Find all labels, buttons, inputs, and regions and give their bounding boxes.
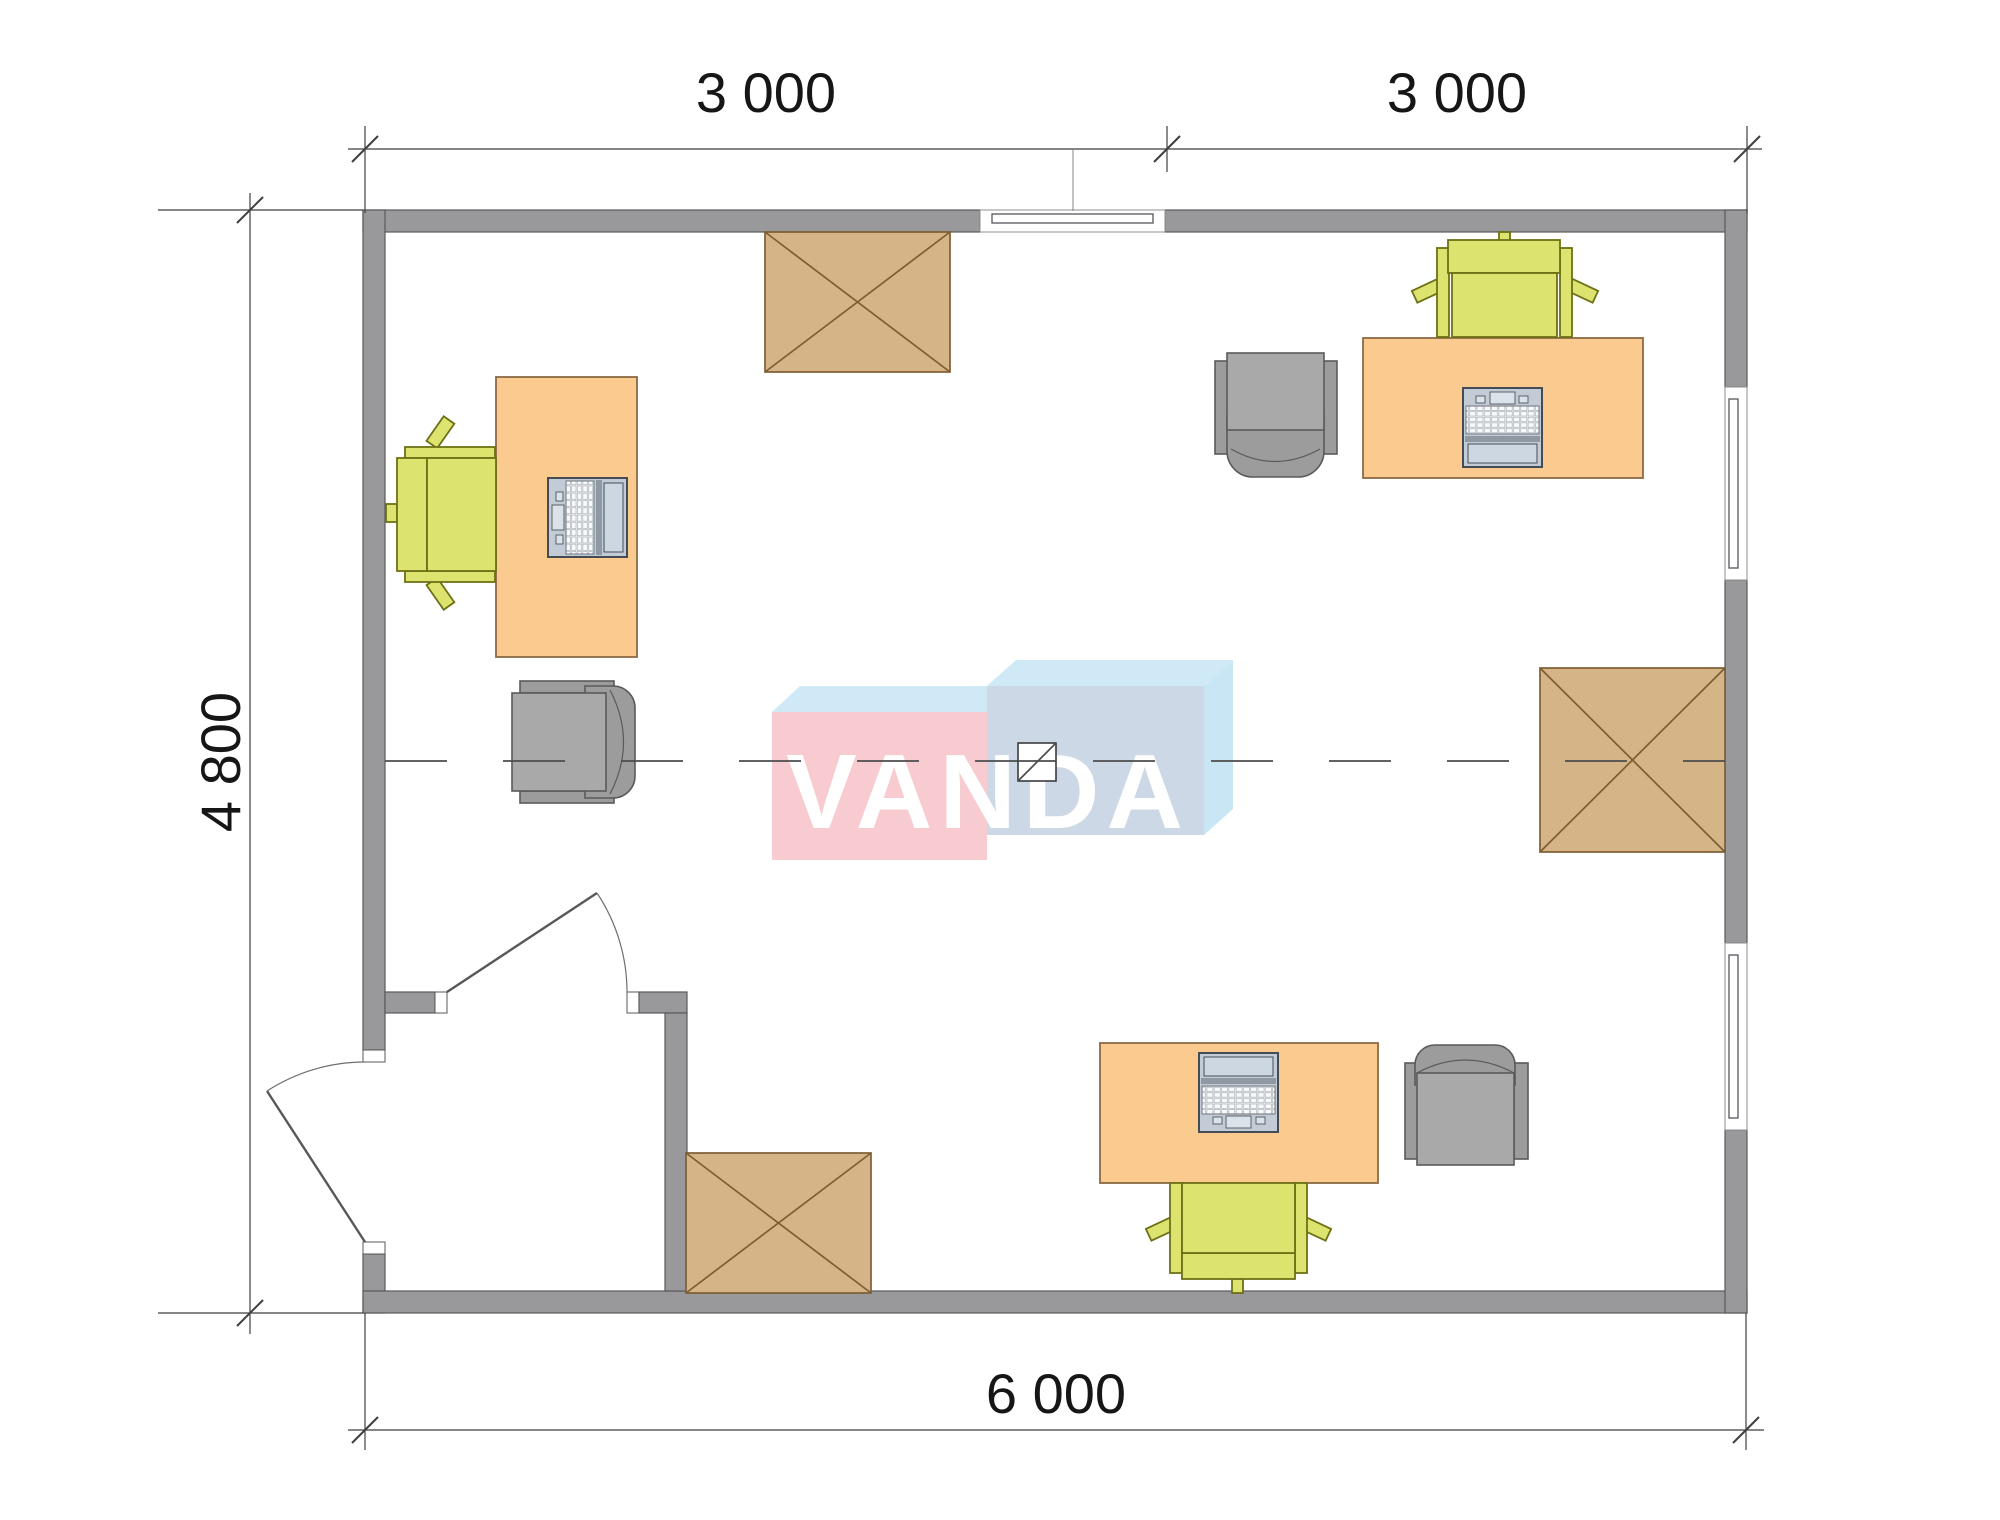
chair-back [1182,1253,1295,1279]
cabinet-right [1540,668,1725,852]
entry-vestibule-walls [363,992,687,1291]
window-frame [1729,955,1738,1118]
dimension-label-top-left: 3 000 [696,61,836,124]
door-leaf [267,1091,365,1242]
door-interior [447,893,627,992]
bottom-dimension: 6 000 [348,1313,1764,1450]
door-swing-arc [267,1062,365,1091]
door-jamb [435,992,447,1013]
window-right-lower [1725,943,1747,1130]
chair-knob [386,504,397,522]
dimension-label-top-right: 3 000 [1387,61,1527,124]
window-frame [992,214,1153,223]
vestibule-wall-stub-right [639,992,687,1013]
chair-knob [1232,1278,1243,1293]
door-swing-arc [597,893,627,992]
chair-back [1448,240,1560,273]
top-dimension: 3 000 3 000 [348,61,1762,213]
chair-armrest [405,447,495,458]
dimension-label-left: 4 800 [189,692,252,832]
cabinet-bottom-left [686,1153,871,1293]
guest-chair-center-left [512,681,635,803]
chair-seat [1182,1183,1295,1253]
cabinet-top [765,232,950,372]
vanda-logo: VANDA [772,660,1233,860]
dimension-label-bottom: 6 000 [986,1362,1126,1425]
logo-right-box-side [1204,660,1233,835]
wall-bottom [363,1291,1747,1313]
chair-armrest [405,571,495,582]
window-frame [1729,399,1738,568]
chair-seat [1452,273,1557,337]
office-chair-top-right [1412,232,1598,337]
wall-top-right-segment [1165,210,1747,232]
laptop-top-left [548,478,627,557]
wall-right-upper [1725,210,1747,387]
office-chair-top-left [386,416,496,609]
logo-wordmark: VANDA [786,733,1190,851]
chair-armrest [1295,1183,1307,1273]
chair-armrest [1560,248,1572,337]
logo-right-box-top [987,660,1233,686]
chair-armrest [1170,1183,1182,1273]
wall-top-left-segment [363,210,980,232]
logo-left-box-top [772,686,1015,712]
window-right-upper [1725,387,1747,580]
chair-seat [1227,353,1324,430]
wall-right-lower [1725,1130,1747,1313]
door-jamb [627,992,639,1013]
guest-chair-bottom-right [1405,1045,1528,1165]
wall-right-middle [1725,580,1747,943]
door-leaf [447,893,597,992]
guest-chair-top-right [1215,353,1337,477]
chair-back [397,458,427,571]
chair-seat [512,693,606,791]
chair-seat [1417,1073,1514,1165]
window-top [980,210,1165,232]
wall-left-upper [363,210,385,1050]
office-chair-bottom [1146,1183,1331,1293]
chair-lever [426,416,454,448]
chair-armrest [1514,1063,1528,1159]
door-jamb [363,1242,385,1254]
left-dimension: 4 800 [158,193,363,1334]
vestibule-wall-vertical [665,1013,687,1291]
laptop-top-right [1463,388,1542,467]
chair-seat [427,458,496,571]
floor-plan-canvas: VANDA [0,0,2000,1520]
laptop-bottom [1199,1053,1278,1132]
vestibule-wall-stub-left [385,992,435,1013]
chair-armrest [1323,361,1337,454]
door-exterior [267,1062,365,1242]
floor-plan-drawing: VANDA [0,0,2000,1520]
door-jamb [363,1050,385,1062]
